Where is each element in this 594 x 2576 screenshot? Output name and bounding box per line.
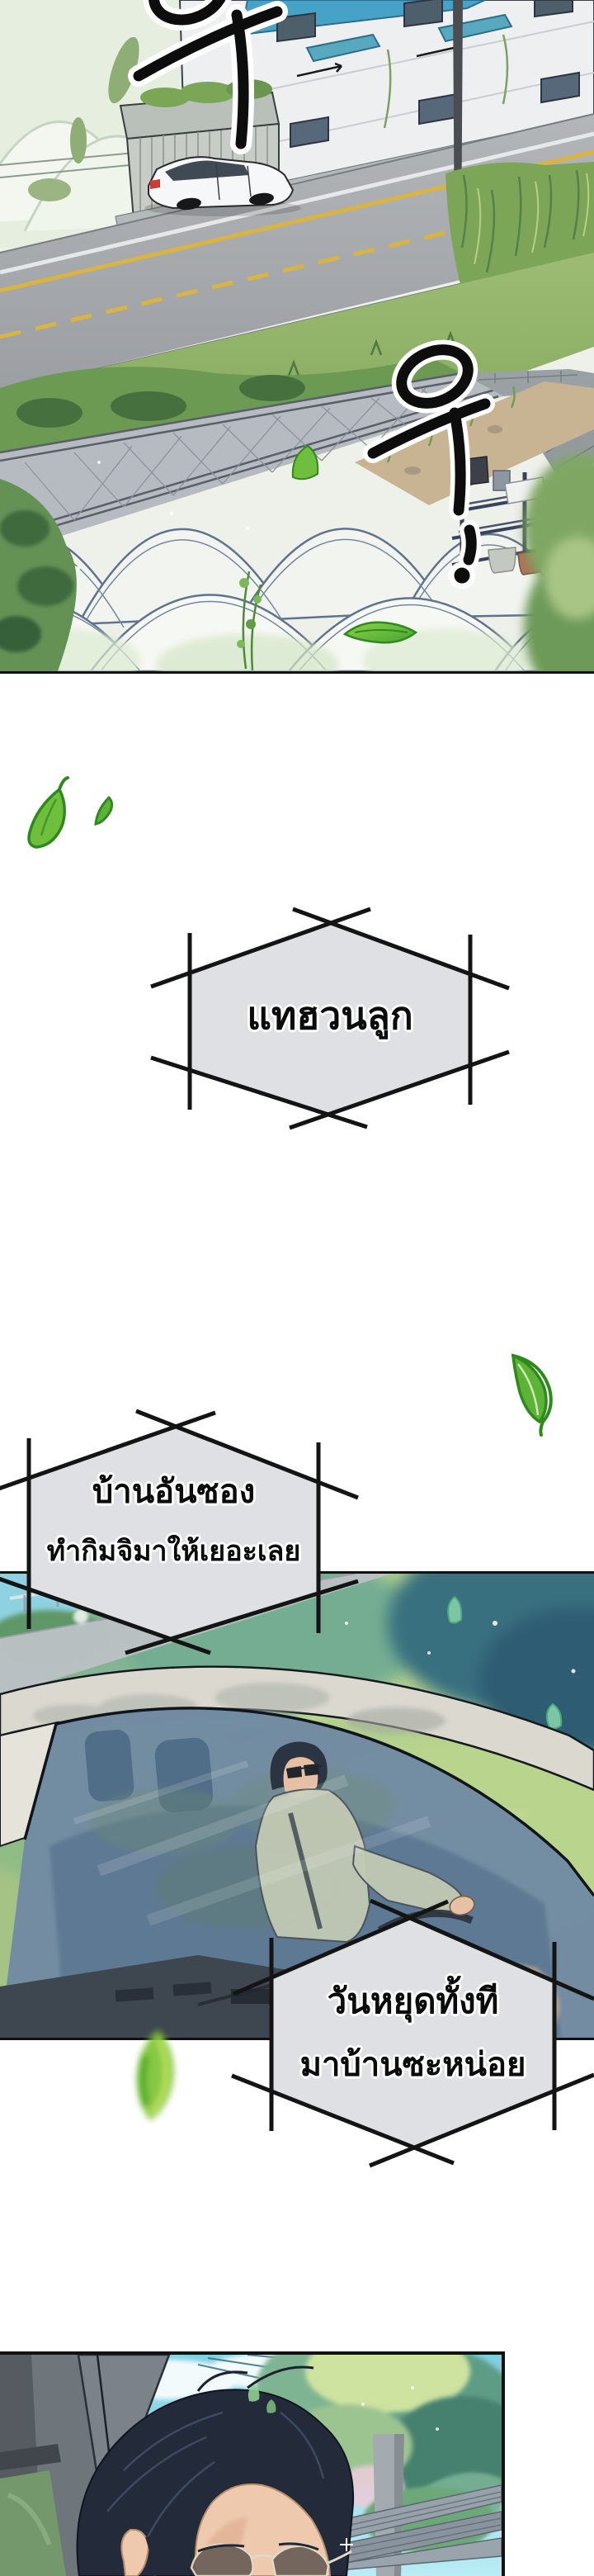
leaf-pair — [12, 774, 144, 857]
panel-man-sunglasses — [0, 2351, 505, 2576]
speech-bubble-1: แทฮวนลูก — [140, 874, 536, 1163]
speech-bubble-3: วันหยุดทั้งที มาบ้านซะหน่อย — [231, 1889, 594, 2219]
bubble-text-line: วันหยุดทั้งที — [271, 1982, 554, 2021]
road-scene-art — [0, 0, 594, 671]
speech-bubble-2: บ้านอันซอง ทำกิมจิมาให้เยอะเลย — [0, 1394, 363, 1691]
bush-shadow — [16, 398, 82, 428]
leaf-right — [495, 1346, 577, 1437]
corner-bush-right — [524, 454, 594, 671]
leaf-blurred — [107, 2023, 198, 2130]
webtoon-page: แทฮวนลูก บ้านอันซอง ทำกิมจิมาให้เยอะเลย — [0, 0, 594, 2576]
sfx-u — [136, 0, 285, 149]
bubble-text-line: ทำกิมจิมาให้เยอะเลย — [16, 1536, 331, 1568]
sfx-ung — [371, 347, 495, 594]
bubble-text-line: มาบ้านซะหน่อย — [271, 2046, 554, 2084]
bubble-text-line: แทฮวนลูก — [190, 994, 470, 1038]
bush-shadow — [111, 391, 186, 421]
arrival-scene-art — [0, 2355, 502, 2576]
bubble-text-line: บ้านอันซอง — [29, 1473, 318, 1511]
bush-shadow — [239, 375, 305, 401]
panel-road-greenhouses — [0, 0, 594, 674]
